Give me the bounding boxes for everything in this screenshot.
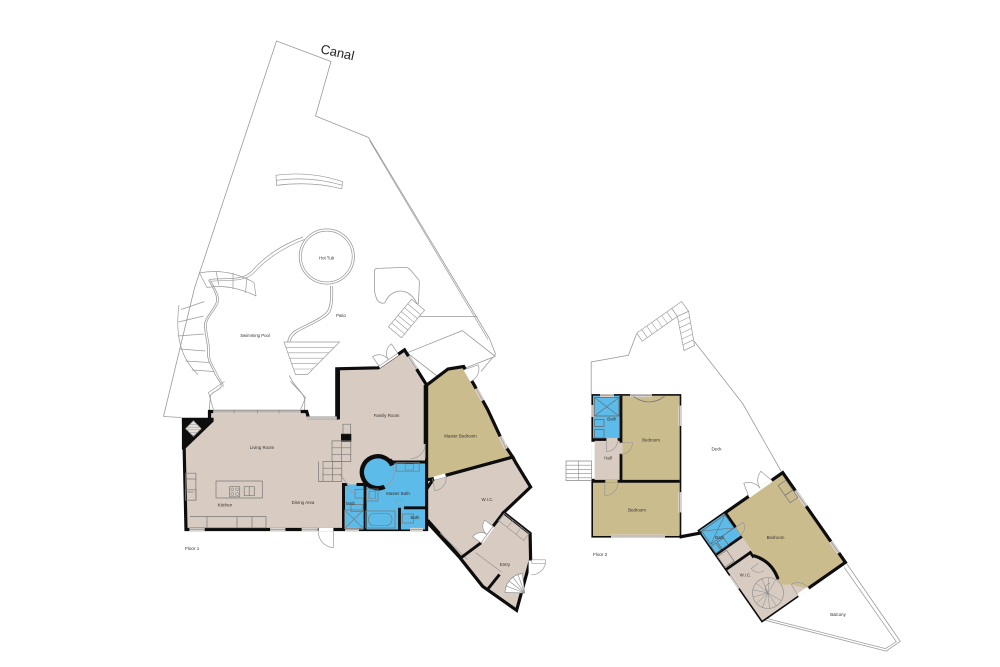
svg-text:Floor 2: Floor 2 — [593, 552, 608, 557]
svg-text:Family Room: Family Room — [374, 413, 400, 418]
svg-text:Bedroom: Bedroom — [642, 438, 660, 443]
svg-text:Master Bath: Master Bath — [386, 491, 410, 496]
svg-text:Bath: Bath — [346, 501, 356, 506]
svg-text:Bedroom: Bedroom — [628, 508, 646, 513]
svg-text:Bedroom: Bedroom — [767, 535, 785, 540]
svg-text:Bath: Bath — [715, 535, 725, 540]
svg-text:Living Room: Living Room — [250, 445, 275, 450]
svg-text:W.I.C.: W.I.C. — [482, 497, 494, 502]
svg-text:Hall: Hall — [604, 456, 612, 461]
svg-text:Floor 1: Floor 1 — [185, 546, 200, 551]
svg-text:Kitchen: Kitchen — [218, 503, 233, 508]
svg-text:Patio: Patio — [336, 313, 346, 318]
svg-text:Deck: Deck — [711, 447, 722, 452]
svg-text:W.I.C.: W.I.C. — [740, 573, 751, 578]
svg-text:Bath: Bath — [410, 515, 420, 520]
svg-text:Swimming Pool: Swimming Pool — [240, 333, 270, 338]
svg-text:Master Bedroom: Master Bedroom — [444, 434, 477, 439]
svg-text:Entry: Entry — [500, 562, 511, 567]
svg-text:Balcony: Balcony — [830, 612, 846, 617]
svg-text:Bath: Bath — [607, 417, 617, 422]
svg-text:Dining Area: Dining Area — [292, 500, 315, 505]
svg-text:Hot Tub: Hot Tub — [319, 256, 335, 261]
